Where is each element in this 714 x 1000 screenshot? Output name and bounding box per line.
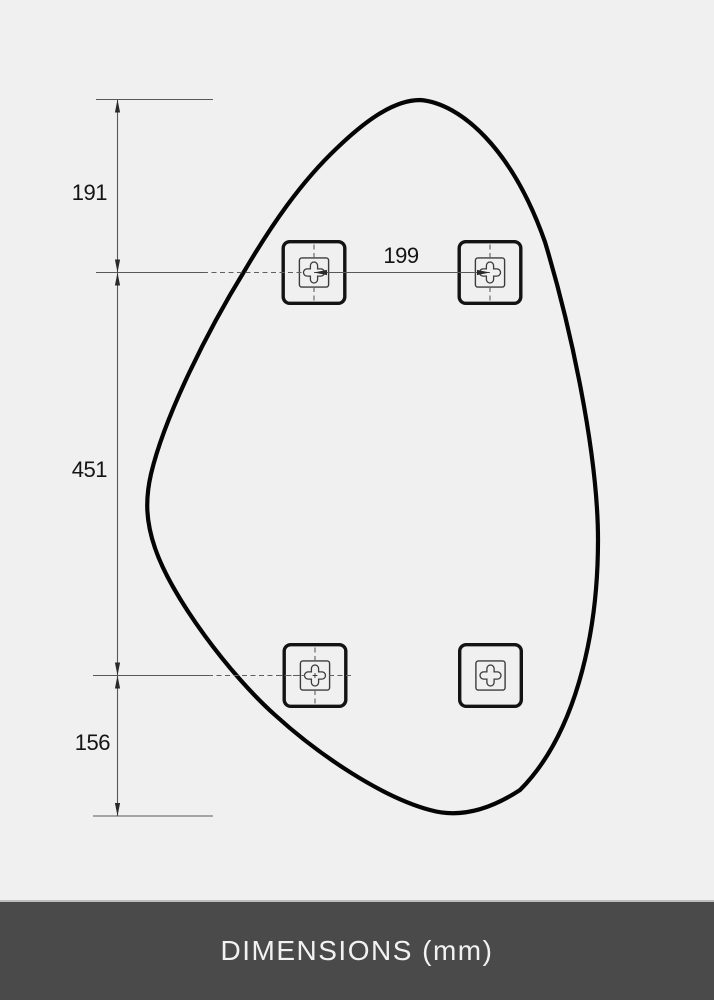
arrowhead-down-bottom xyxy=(115,803,120,816)
arrowhead-up-lower xyxy=(115,676,120,689)
footer-title: DIMENSIONS (mm) xyxy=(221,935,494,967)
arrowhead-down-upper xyxy=(115,260,120,273)
diagram-area: 191 199 451 156 xyxy=(0,0,714,900)
arrowhead-up-top xyxy=(115,100,120,113)
dimension-label-199: 199 xyxy=(383,243,418,268)
dimension-label-156: 156 xyxy=(75,730,110,755)
arrowhead-down-lower xyxy=(115,663,120,676)
dimension-diagram: 191 199 451 156 xyxy=(0,0,714,900)
product-dimension-page: 191 199 451 156 DIMENSIONS (mm) xyxy=(0,0,714,1000)
footer-bar: DIMENSIONS (mm) xyxy=(0,900,714,1000)
dimension-label-191: 191 xyxy=(72,180,107,205)
dimension-label-451: 451 xyxy=(72,457,107,482)
mirror-outline xyxy=(147,100,598,813)
mount-bracket-bottom-right xyxy=(460,645,522,707)
arrowhead-up-upper xyxy=(115,273,120,286)
